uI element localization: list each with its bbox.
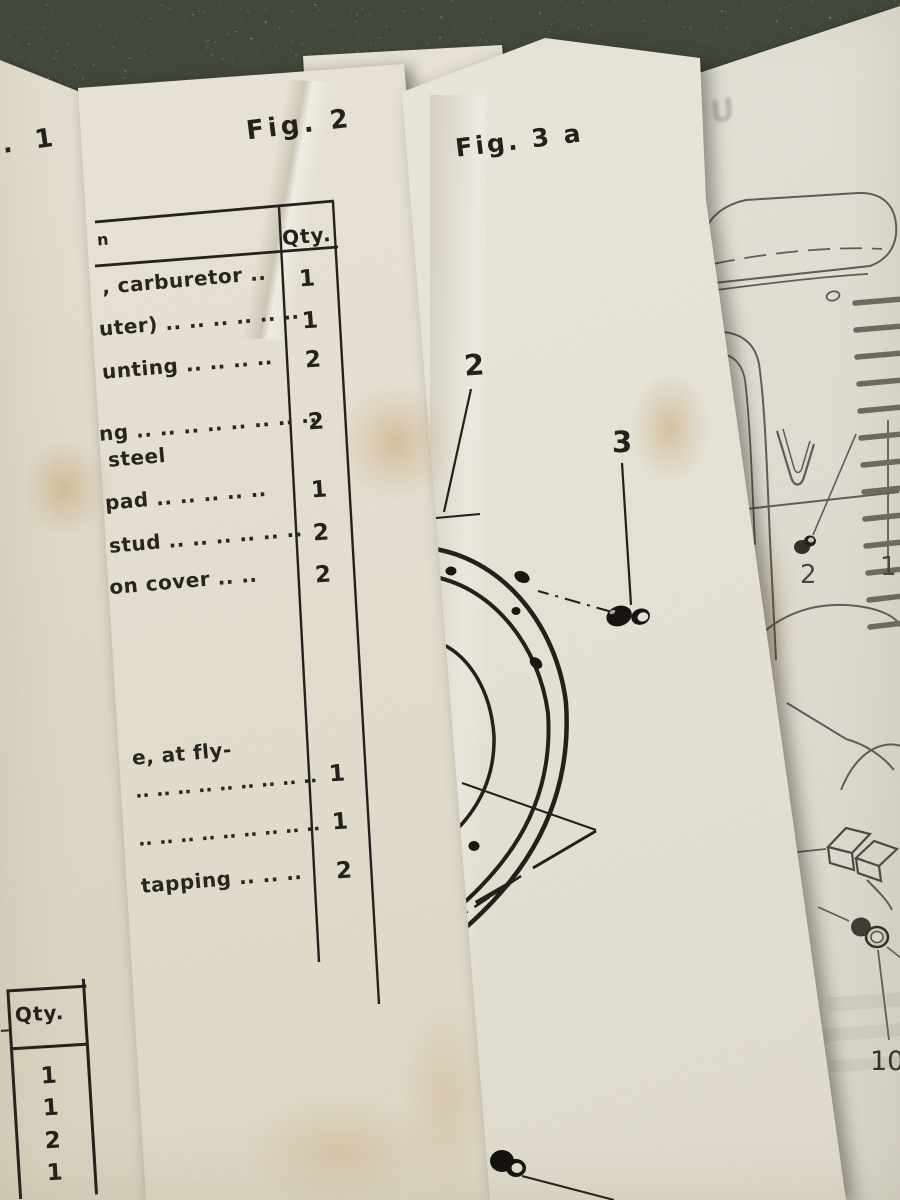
photo-of-parts-catalog-pages: . 1 Qty. 1 1 2 1 Fig. 2 [0,0,900,1200]
carpet-background [0,0,900,1200]
carpet-texture [0,0,900,1200]
